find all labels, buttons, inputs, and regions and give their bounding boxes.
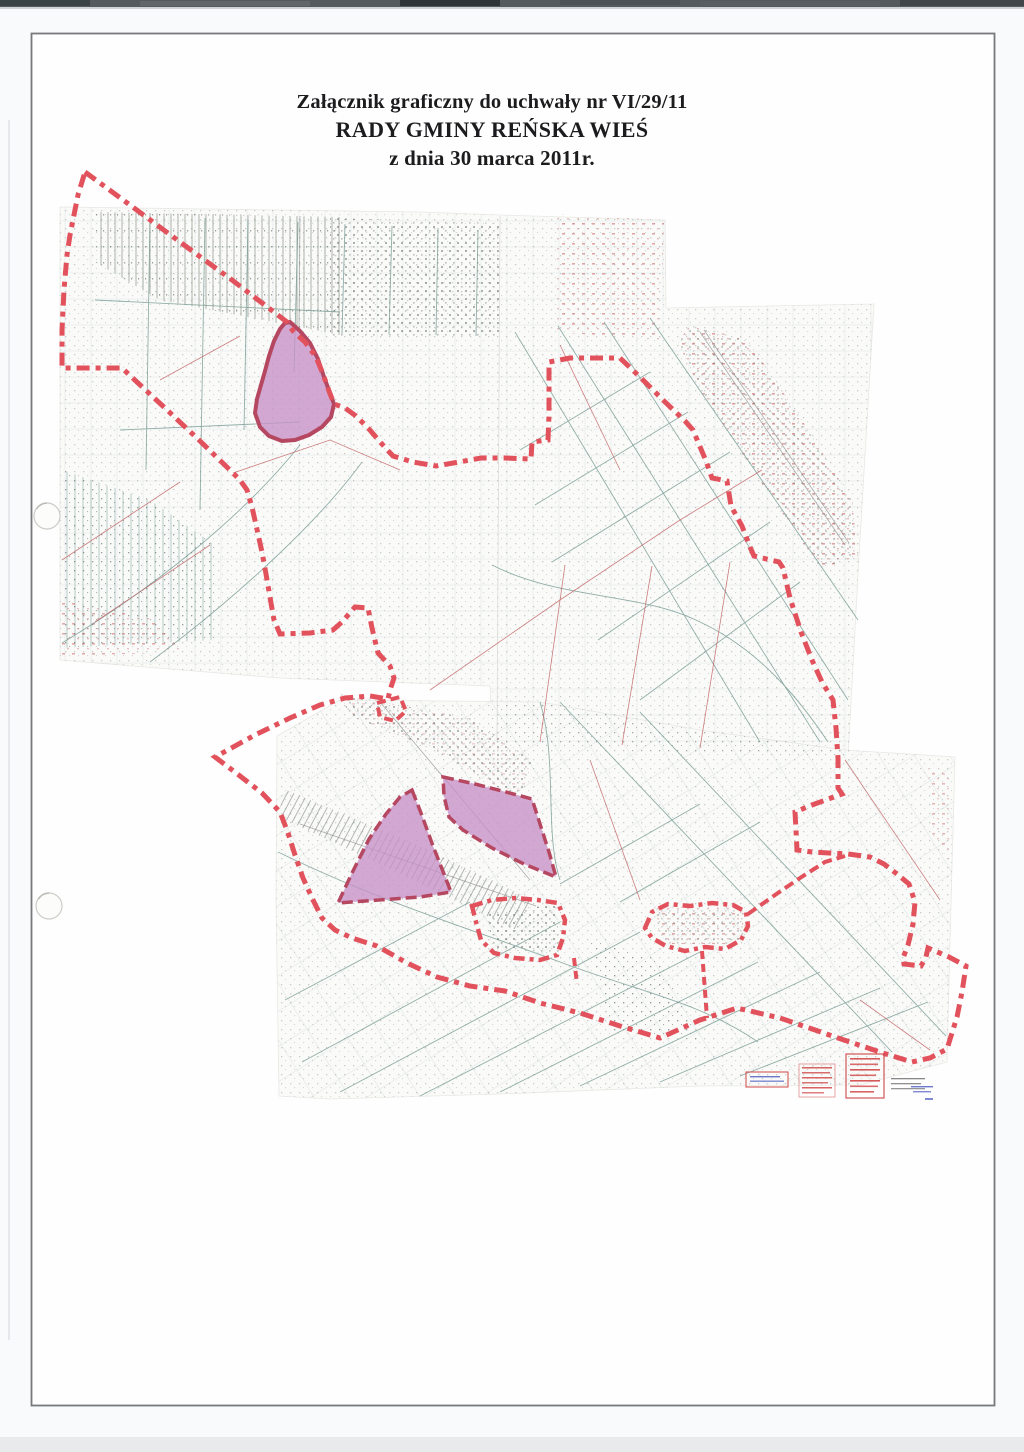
texture-village-north [556, 214, 664, 340]
scan-band-bottom [0, 1437, 1024, 1452]
texture-forest-north [330, 218, 500, 338]
attachment-title: Załącznik graficzny do uchwały nr VI/29/… [297, 88, 688, 172]
map-scan-svg [0, 0, 1024, 1452]
attachment-title-line-1: Załącznik graficzny do uchwały nr VI/29/… [297, 88, 688, 116]
attachment-title-line-3: z dnia 30 marca 2011r. [297, 144, 688, 172]
scanned-page: Załącznik graficzny do uchwały nr VI/29/… [0, 0, 1024, 1452]
scan-streak-left [8, 120, 10, 1340]
scanner-edge-band [0, 0, 1024, 9]
texture-village-enclave-east-dark [656, 908, 744, 944]
attachment-title-line-2: RADY GMINY REŃSKA WIEŚ [297, 116, 688, 144]
